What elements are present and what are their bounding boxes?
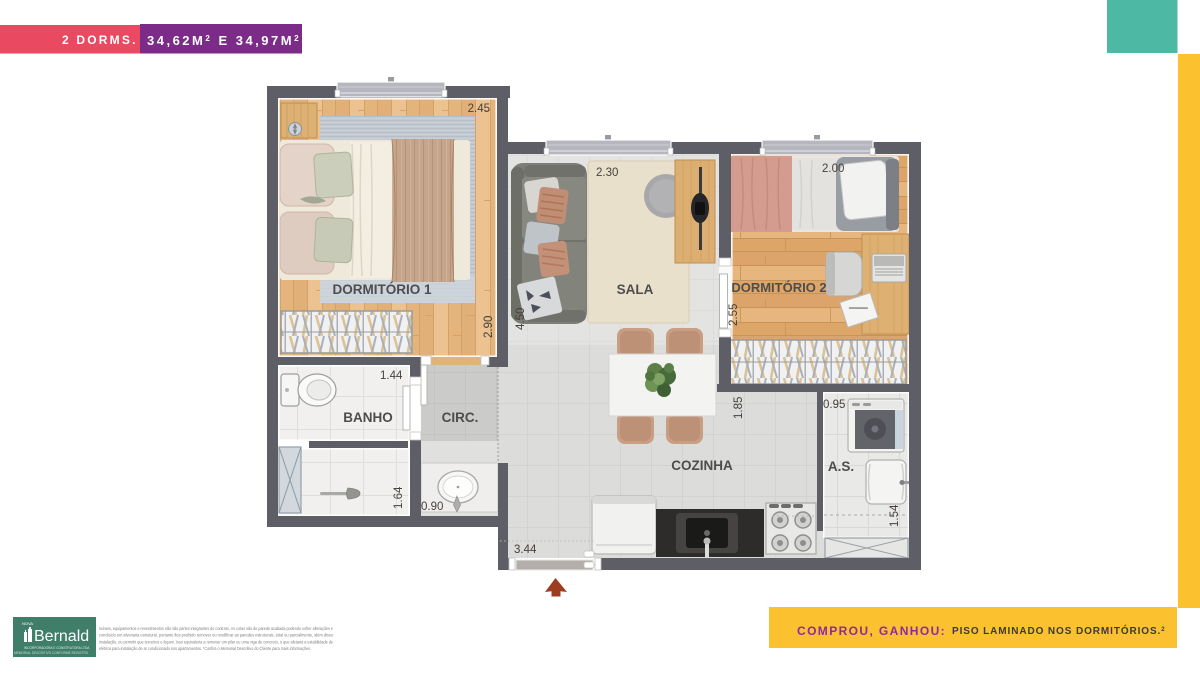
svg-text:elétrica para instalação de ar: elétrica para instalação de ar condicion… bbox=[99, 646, 311, 651]
svg-text:2.30: 2.30 bbox=[596, 167, 618, 179]
svg-text:CIRC.: CIRC. bbox=[442, 410, 479, 425]
svg-text:móveis, equipamentos e revesti: móveis, equipamentos e revestimentos não… bbox=[99, 626, 333, 631]
svg-text:34,62M2 E 34,97M2: 34,62M2 E 34,97M2 bbox=[147, 33, 301, 48]
svg-text:2.90: 2.90 bbox=[483, 316, 495, 338]
svg-text:SALA: SALA bbox=[617, 282, 654, 297]
svg-text:INCORPORADORA E CONSTRUTORA LT: INCORPORADORA E CONSTRUTORA LTDA bbox=[24, 646, 90, 650]
svg-text:1.44: 1.44 bbox=[380, 370, 403, 382]
svg-text:DORMITÓRIO 1: DORMITÓRIO 1 bbox=[332, 282, 431, 297]
svg-text:2 DORMS.: 2 DORMS. bbox=[62, 33, 138, 47]
svg-text:3.44: 3.44 bbox=[514, 544, 537, 556]
svg-text:1.85: 1.85 bbox=[733, 397, 745, 419]
svg-text:2.55: 2.55 bbox=[728, 304, 740, 326]
svg-text:2.45: 2.45 bbox=[468, 103, 490, 115]
svg-text:Bernald: Bernald bbox=[34, 628, 89, 645]
svg-text:DORMITÓRIO 2: DORMITÓRIO 2 bbox=[731, 280, 826, 295]
svg-text:instalação, ou permitir que te: instalação, ou permitir que terceiros o … bbox=[99, 640, 333, 645]
svg-text:0.90: 0.90 bbox=[421, 501, 443, 513]
svg-text:COZINHA: COZINHA bbox=[671, 458, 733, 473]
svg-text:MEMORIAL DESCRITIVO CONFORME R: MEMORIAL DESCRITIVO CONFORME REGISTRO bbox=[14, 651, 89, 655]
svg-text:2.00: 2.00 bbox=[822, 163, 844, 175]
svg-text:0.95: 0.95 bbox=[823, 399, 845, 411]
svg-text:concluído em alvenaria estrutu: concluído em alvenaria estrutural, porta… bbox=[99, 633, 333, 638]
svg-text:1.64: 1.64 bbox=[393, 486, 405, 509]
svg-text:4.50: 4.50 bbox=[515, 308, 527, 330]
svg-text:COMPROU, GANHOU:: COMPROU, GANHOU: bbox=[797, 624, 946, 638]
svg-text:NOVA: NOVA bbox=[22, 621, 33, 626]
svg-text:PISO LAMINADO NOS DORMITÓRIOS.: PISO LAMINADO NOS DORMITÓRIOS.2 bbox=[952, 624, 1165, 637]
svg-text:BANHO: BANHO bbox=[343, 410, 393, 425]
svg-text:1.54: 1.54 bbox=[889, 504, 901, 527]
svg-text:A.S.: A.S. bbox=[828, 459, 854, 474]
